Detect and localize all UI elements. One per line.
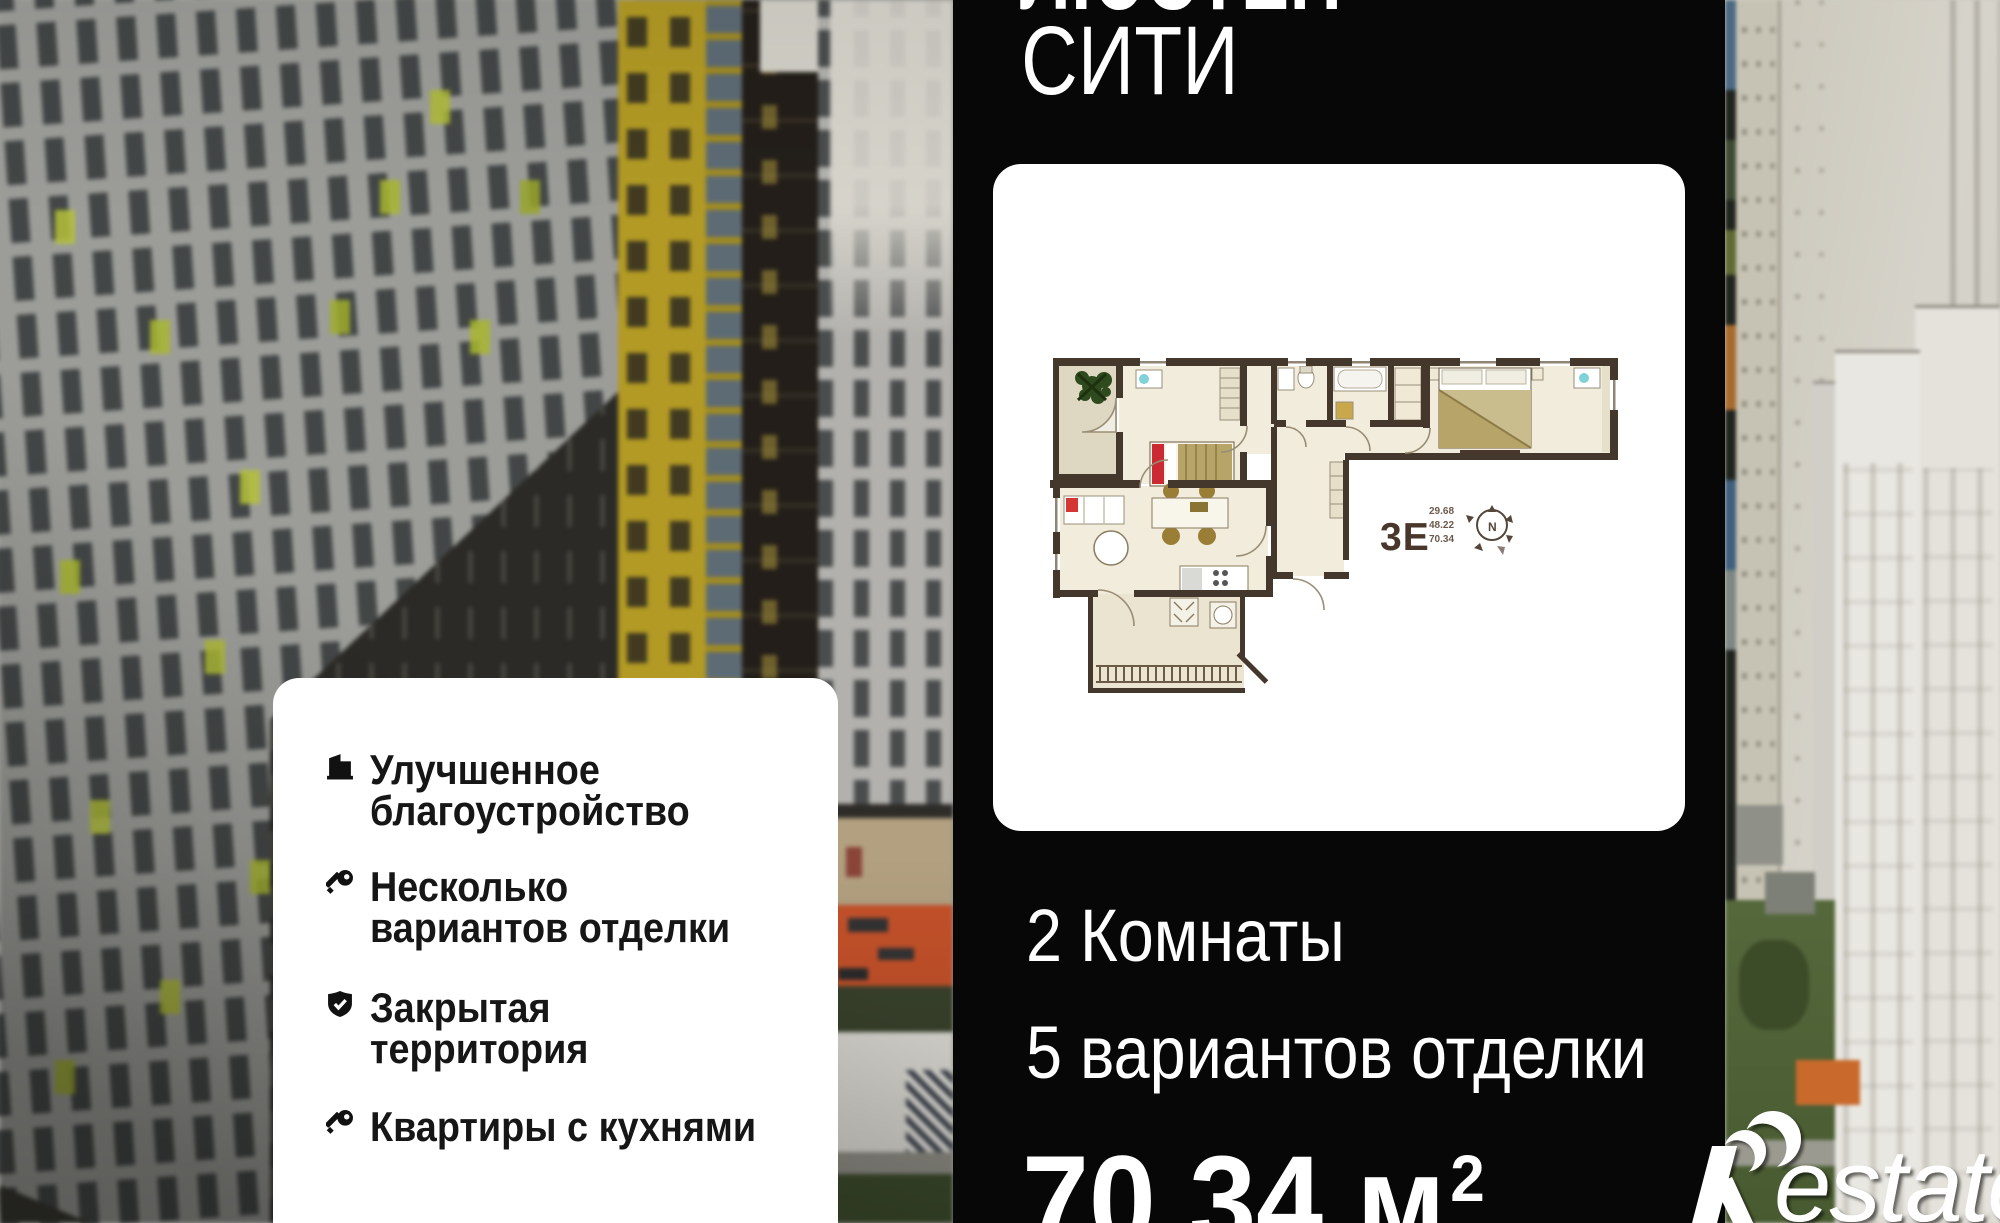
svg-text:estate: estate [1774,1128,2000,1223]
svg-text:29.68: 29.68 [1429,506,1454,517]
svg-text:3Е: 3Е [1380,516,1430,559]
svg-text:48.22: 48.22 [1429,520,1454,531]
svg-text:N: N [1488,520,1497,534]
svg-text:70.34: 70.34 [1429,534,1454,545]
